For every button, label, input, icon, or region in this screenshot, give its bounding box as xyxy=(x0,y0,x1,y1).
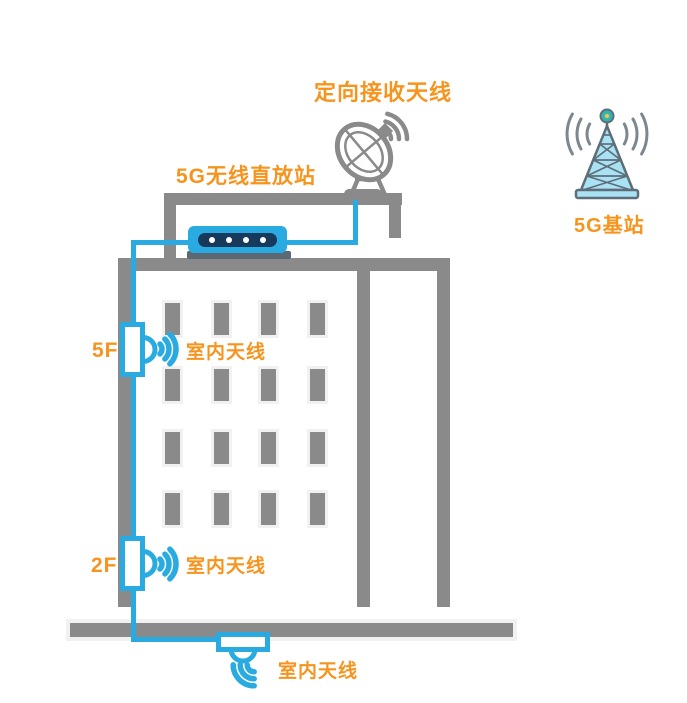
building-right-wall xyxy=(437,271,450,607)
repeater-panel xyxy=(198,233,277,247)
rooftop-railing-right-leg xyxy=(389,205,401,238)
roof-cable-right xyxy=(287,240,358,245)
repeater-led xyxy=(243,237,249,243)
floor-label-5f: 5F xyxy=(92,340,119,361)
window xyxy=(310,493,325,525)
floor-label-2f: 2F xyxy=(91,555,118,576)
building-top-wall xyxy=(118,258,450,271)
roof-cable-left xyxy=(131,240,189,245)
window xyxy=(165,493,180,525)
window xyxy=(261,303,276,335)
directional-antenna-label: 定向接收天线 xyxy=(314,82,452,104)
window xyxy=(261,493,276,525)
repeater-led xyxy=(226,237,232,243)
window xyxy=(261,369,276,401)
window xyxy=(310,303,325,335)
wifi-waves-icon xyxy=(153,537,183,591)
window xyxy=(310,369,325,401)
window xyxy=(261,432,276,464)
repeater-led xyxy=(209,237,215,243)
wifi-waves-icon xyxy=(153,322,183,376)
window xyxy=(214,493,229,525)
repeater-device-icon xyxy=(188,226,287,253)
window xyxy=(214,369,229,401)
repeater-led xyxy=(260,237,266,243)
window xyxy=(214,432,229,464)
rooftop-railing-left-leg xyxy=(164,205,176,259)
cell-tower-icon xyxy=(552,102,662,204)
diagram-canvas: 定向接收天线 5G无线直放站 5G基站 5F 室内天线 2F 室内天线 室内天线 xyxy=(0,0,687,703)
indoor-antenna-label-ground: 室内天线 xyxy=(278,662,358,681)
ground-cable xyxy=(131,637,222,642)
building-inner-wall xyxy=(357,271,370,607)
window xyxy=(310,432,325,464)
window xyxy=(165,432,180,464)
satellite-dish-icon xyxy=(325,105,425,205)
indoor-antenna-label-2f: 室内天线 xyxy=(186,557,266,576)
window xyxy=(214,303,229,335)
base-station-label: 5G基站 xyxy=(574,216,645,236)
repeater-label: 5G无线直放站 xyxy=(176,166,316,187)
indoor-antenna-label-5f: 室内天线 xyxy=(186,343,266,362)
ground-line xyxy=(70,623,513,637)
